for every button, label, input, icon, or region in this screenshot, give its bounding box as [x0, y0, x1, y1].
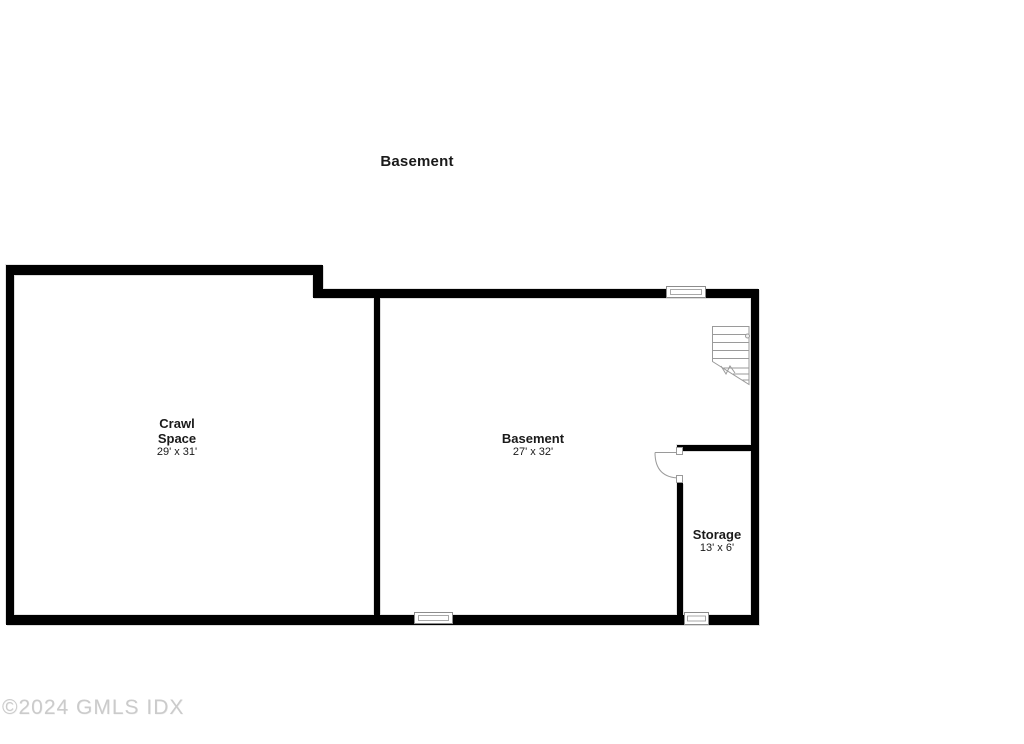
- outer-wall-top-crawl: [6, 265, 323, 275]
- outer-wall-left: [6, 265, 14, 625]
- basement-bottom-window: [415, 613, 453, 624]
- basement-floorplan: Basement: [0, 0, 1024, 744]
- outer-wall-right: [751, 289, 759, 625]
- door-jamb-top: [677, 448, 683, 455]
- room-name: Basement: [473, 431, 593, 446]
- door-swing-arc: [655, 453, 680, 479]
- room-name: Storage: [677, 527, 757, 542]
- room-dimensions: 29' x 31': [117, 446, 237, 458]
- room-label-crawl-space: Crawl Space 29' x 31': [117, 416, 237, 458]
- copyright-watermark: ©2024 GMLS IDX: [2, 696, 184, 720]
- partition-wall-crawl-basement: [374, 298, 380, 615]
- storage-door: [655, 448, 683, 483]
- door-jamb-bottom: [677, 476, 683, 483]
- room-dimensions: 27' x 32': [473, 446, 593, 458]
- room-label-basement: Basement 27' x 32': [473, 431, 593, 458]
- staircase: [713, 327, 750, 385]
- stair-newel-marker: [746, 334, 750, 338]
- stair-outline: [713, 327, 750, 385]
- floorplan-drawing: [0, 0, 1024, 744]
- room-label-storage: Storage 13' x 6': [677, 527, 757, 554]
- storage-bottom-window: [685, 613, 709, 625]
- outer-wall-bottom: [6, 615, 759, 625]
- storage-top-wall: [677, 445, 751, 451]
- room-name: Crawl Space: [145, 416, 209, 446]
- room-dimensions: 13' x 6': [677, 542, 757, 554]
- top-wall-window: [667, 287, 706, 298]
